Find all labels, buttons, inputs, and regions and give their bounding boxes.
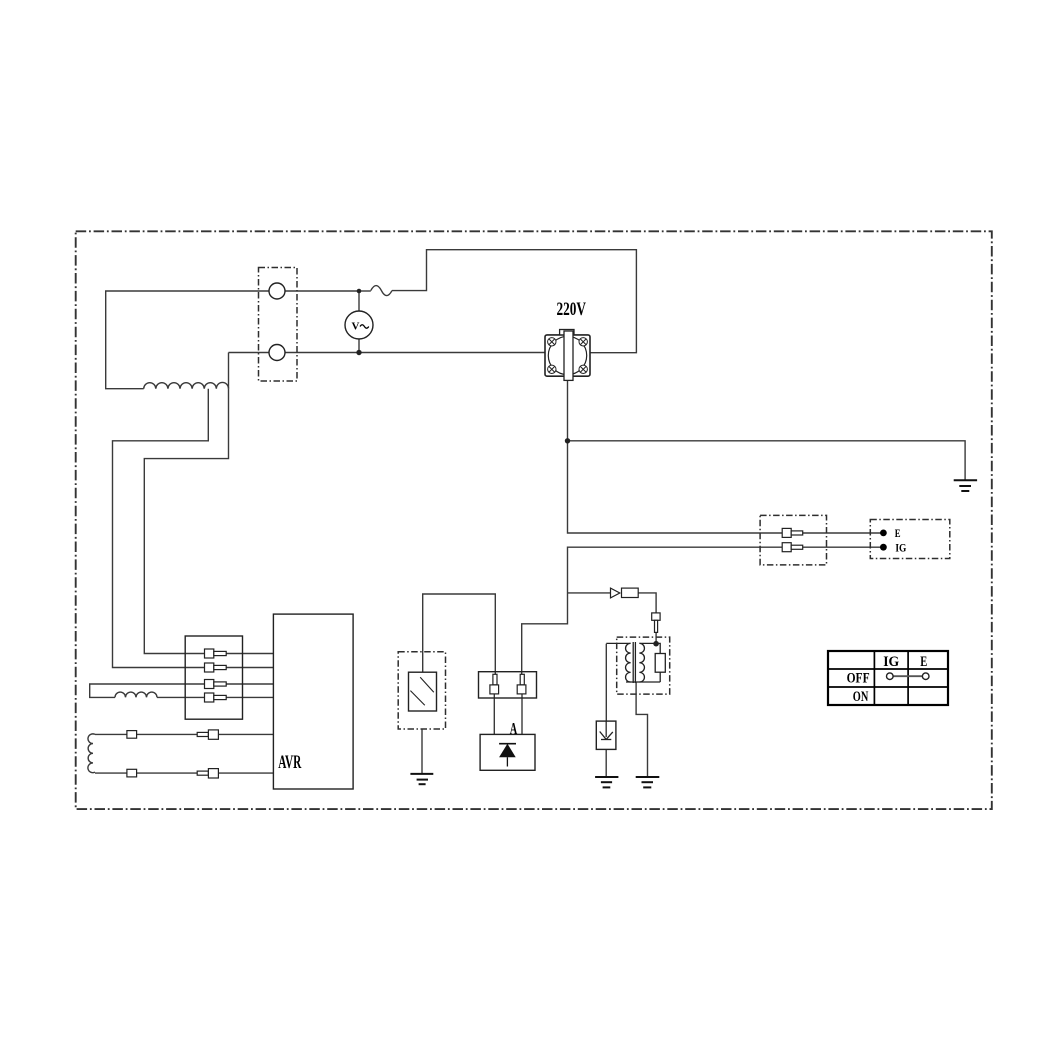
svg-text:OFF: OFF <box>847 669 870 686</box>
svg-text:220V: 220V <box>557 299 587 320</box>
svg-text:IG: IG <box>883 653 899 670</box>
svg-text:ON: ON <box>853 688 869 705</box>
svg-text:A: A <box>510 719 518 738</box>
svg-text:IG: IG <box>895 540 906 554</box>
svg-text:E: E <box>920 653 927 670</box>
svg-text:AVR: AVR <box>278 752 301 773</box>
svg-text:E: E <box>895 526 901 540</box>
svg-text:V: V <box>352 321 360 333</box>
